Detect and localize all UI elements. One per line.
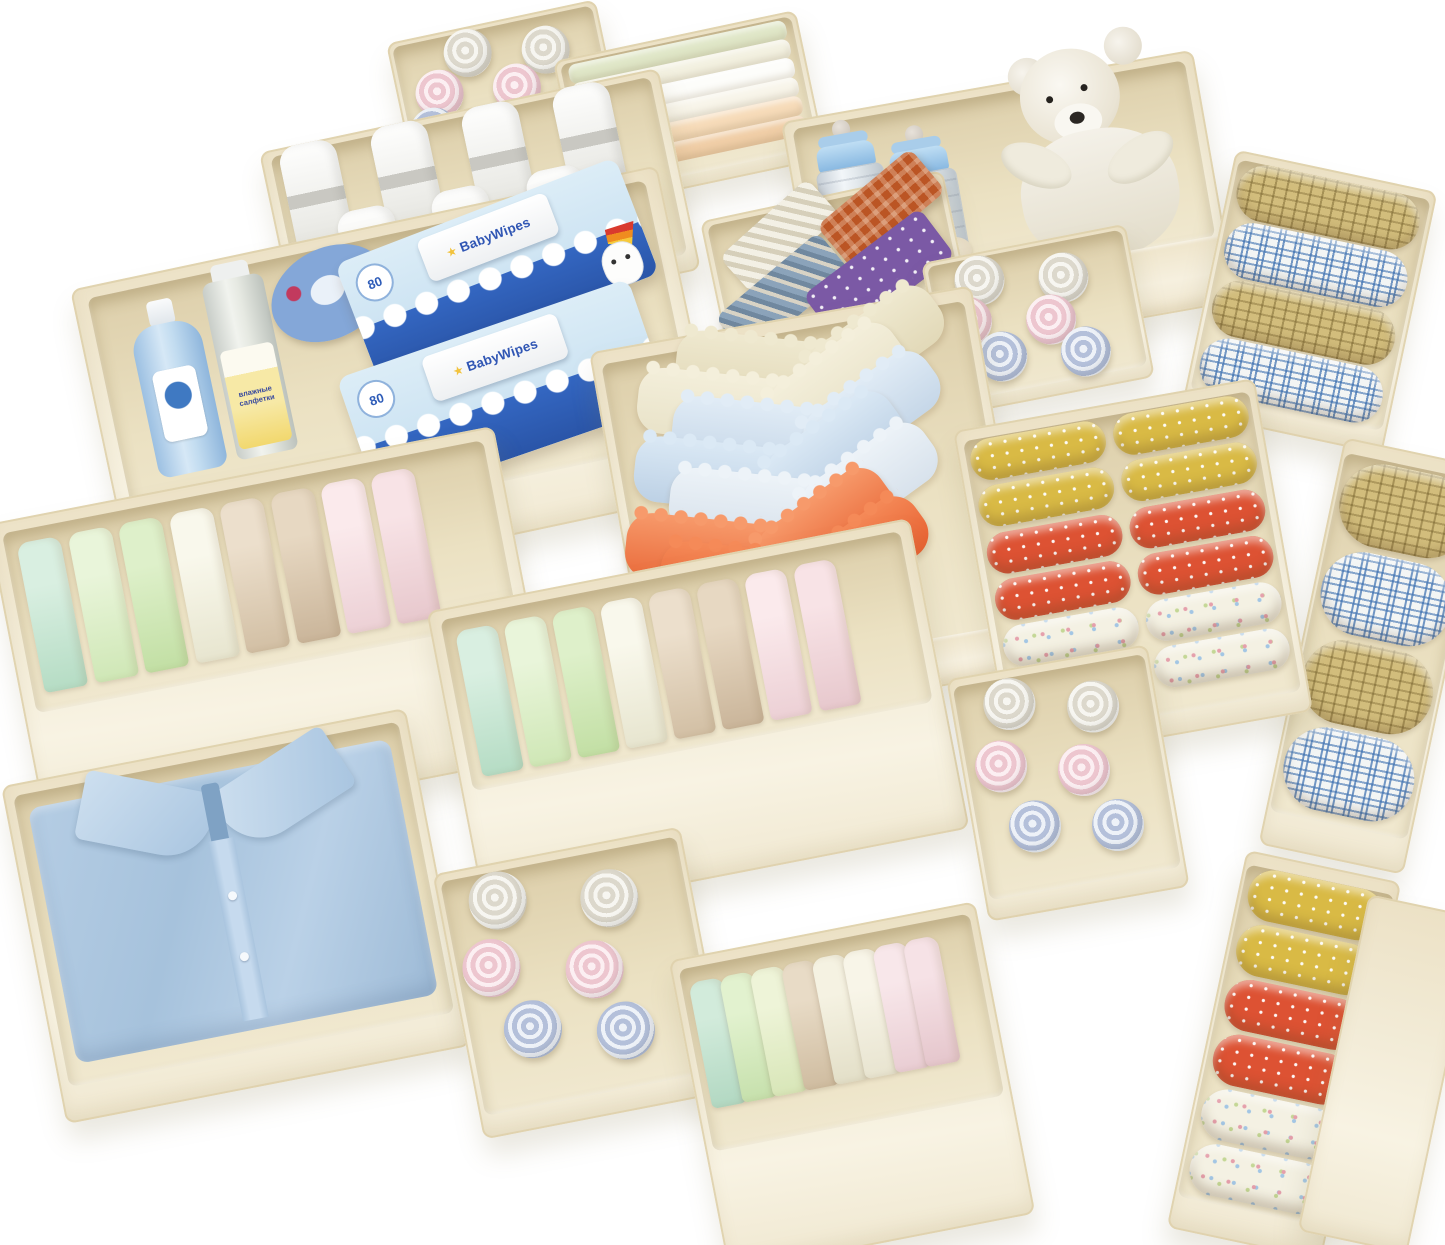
wipes-count-text: 80 bbox=[367, 390, 386, 409]
wipes-brand-text: BabyWipes bbox=[457, 215, 532, 256]
rolled-cloth bbox=[499, 996, 567, 1064]
rolled-plaid-cloth bbox=[1275, 720, 1422, 830]
wipes-count-badge: 80 bbox=[352, 375, 400, 423]
rolled-cloth bbox=[971, 736, 1031, 796]
product-photo: влажные салфетки 80 ★ BabyWipes 80 bbox=[0, 0, 1445, 1245]
rolled-plaid-cloth bbox=[1294, 632, 1441, 742]
rolled-cloth bbox=[1087, 795, 1147, 855]
bear-ear bbox=[1101, 24, 1145, 68]
rolled-cloth bbox=[1054, 739, 1114, 799]
shirt-collar bbox=[208, 724, 357, 855]
rolled-cloth bbox=[464, 867, 532, 935]
rolled-cloth bbox=[592, 997, 660, 1065]
rolled-cloth bbox=[560, 935, 628, 1003]
wipes-count-badge: 80 bbox=[350, 259, 399, 308]
shirt-collar bbox=[74, 769, 217, 863]
bin-interior bbox=[13, 722, 454, 1087]
bin-interior bbox=[678, 914, 1004, 1152]
rolled-cloth bbox=[1063, 676, 1123, 736]
star-icon: ★ bbox=[444, 245, 458, 260]
rolled-plaid-cloth bbox=[1313, 544, 1445, 654]
rolled-cloth bbox=[576, 865, 644, 933]
canister-label: влажные салфетки bbox=[219, 341, 293, 450]
rolled-cloth bbox=[1005, 796, 1065, 856]
rolled-plaid-cloth bbox=[1331, 457, 1445, 567]
shirt-placket bbox=[209, 837, 269, 1021]
small-rolls-bin-b bbox=[946, 644, 1190, 922]
folded-shirt bbox=[28, 738, 439, 1064]
pastel-folded-bin bbox=[669, 901, 1036, 1245]
rolled-cloth bbox=[457, 934, 525, 1002]
wipes-brand-text: BabyWipes bbox=[464, 336, 539, 374]
rolled-cloth bbox=[979, 673, 1039, 733]
wipes-count-text: 80 bbox=[365, 274, 384, 293]
star-icon: ★ bbox=[451, 363, 465, 378]
bin-interior bbox=[953, 654, 1181, 901]
